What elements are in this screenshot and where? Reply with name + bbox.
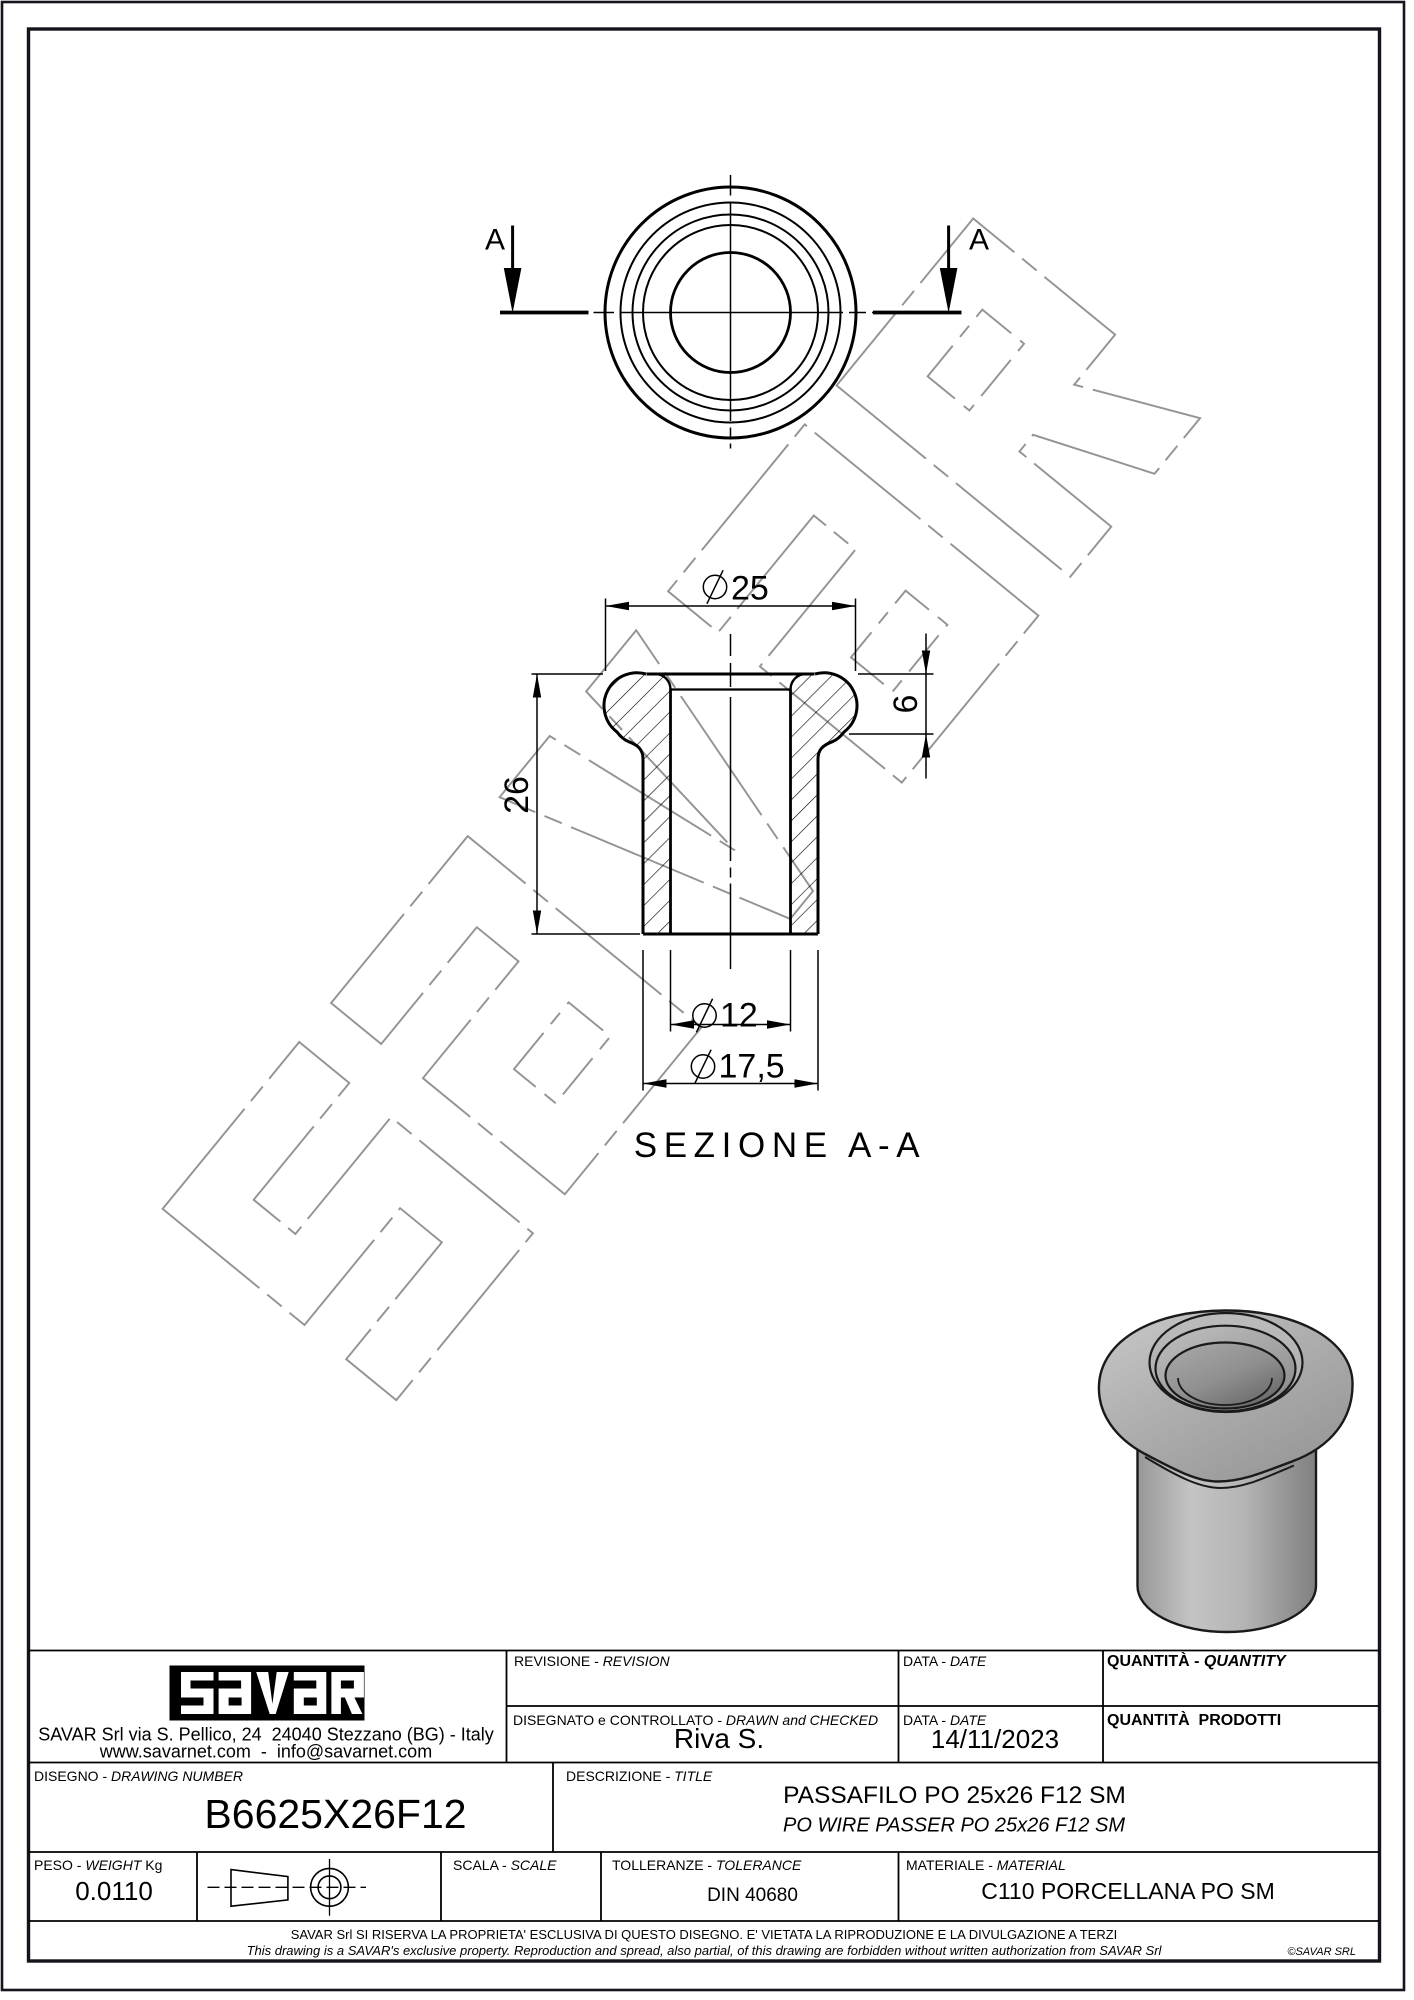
svg-text:DESCRIZIONE - TITLE: DESCRIZIONE - TITLE xyxy=(566,1768,713,1784)
svg-text:PESO - WEIGHT Kg: PESO - WEIGHT Kg xyxy=(34,1857,162,1873)
svg-text:6: 6 xyxy=(887,695,925,714)
svg-text:14/11/2023: 14/11/2023 xyxy=(931,1724,1059,1754)
svg-text:This drawing is a SAVAR's excl: This drawing is a SAVAR's exclusive prop… xyxy=(247,1943,1163,1958)
svg-text:B6625X26F12: B6625X26F12 xyxy=(204,1791,466,1837)
svg-text:SAVAR Srl SI RISERVA LA PROPRI: SAVAR Srl SI RISERVA LA PROPRIETA' ESCLU… xyxy=(291,1927,1118,1942)
svg-text:PASSAFILO PO 25x26 F12 SM: PASSAFILO PO 25x26 F12 SM xyxy=(783,1782,1126,1809)
svg-text:QUANTITÀ PRODOTTI: QUANTITÀ PRODOTTI xyxy=(1107,1710,1281,1729)
svg-text:0.0110: 0.0110 xyxy=(75,1876,153,1906)
svg-text:SEZIONE A-A: SEZIONE A-A xyxy=(634,1126,926,1165)
svg-text:26: 26 xyxy=(498,776,536,814)
svg-text:SCALA - SCALE: SCALA - SCALE xyxy=(453,1857,557,1873)
svg-text:www.savarnet.com - info@sava: www.savarnet.com - info@savarnet.com xyxy=(99,1742,432,1762)
svg-text:25: 25 xyxy=(731,570,769,608)
svg-text:REVISIONE - REVISION: REVISIONE - REVISION xyxy=(514,1653,670,1669)
svg-text:DISEGNO - DRAWING NUMBER: DISEGNO - DRAWING NUMBER xyxy=(34,1768,243,1784)
svg-text:C110 PORCELLANA PO SM: C110 PORCELLANA PO SM xyxy=(981,1878,1275,1904)
svg-text:DATA - DATE: DATA - DATE xyxy=(903,1653,987,1669)
svg-text:12: 12 xyxy=(720,997,758,1035)
svg-text:©SAVAR SRL: ©SAVAR SRL xyxy=(1287,1946,1356,1958)
svg-text:A: A xyxy=(969,224,989,257)
svg-text:A: A xyxy=(485,224,505,257)
svg-text:Riva S.: Riva S. xyxy=(674,1723,764,1754)
svg-text:QUANTITÀ - QUANTITY: QUANTITÀ - QUANTITY xyxy=(1107,1651,1287,1670)
svg-text:TOLLERANZE - TOLERANCE: TOLLERANZE - TOLERANCE xyxy=(612,1857,802,1873)
svg-text:PO WIRE PASSER PO 25x26 F12 SM: PO WIRE PASSER PO 25x26 F12 SM xyxy=(783,1815,1125,1837)
svg-text:DIN 40680: DIN 40680 xyxy=(707,1885,798,1906)
svg-text:17,5: 17,5 xyxy=(719,1048,785,1086)
svg-text:MATERIALE - MATERIAL: MATERIALE - MATERIAL xyxy=(906,1857,1066,1873)
